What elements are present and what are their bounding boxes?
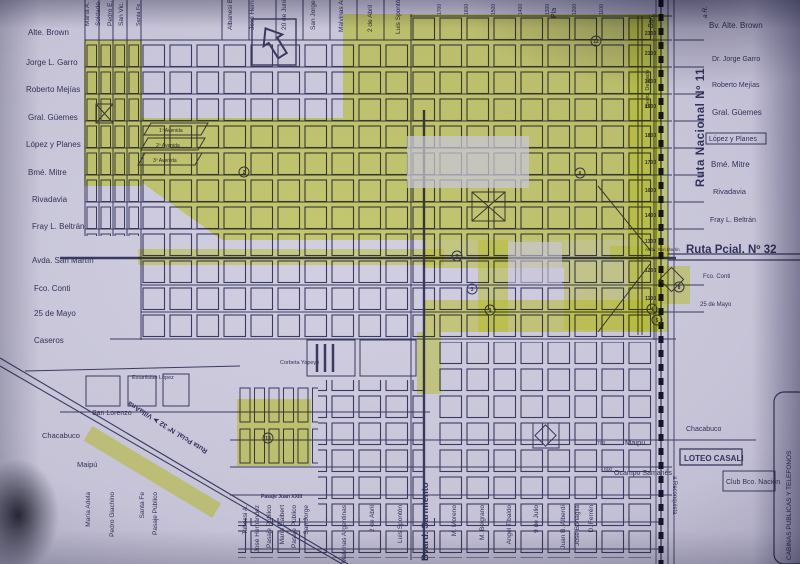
street-label: Avda. San Martín: [32, 256, 94, 265]
km-mark: 1500: [491, 4, 497, 15]
street-label: Soldado: [95, 2, 102, 26]
street-label: López y Planes: [709, 136, 757, 143]
street-label: Fray L. Beltrán: [710, 217, 756, 224]
street-label: José Bonaglia: [574, 505, 581, 546]
street-label: 20 de Junio: [281, 0, 288, 30]
street-label: Tabossi A.: [242, 505, 249, 535]
ruta-11-label: Ruta Nacional Nº 11: [695, 68, 707, 187]
street-label: José Hernández: [254, 505, 261, 552]
street-label: Pasaje Público: [291, 505, 298, 548]
street-label: Bmé. Mitre: [28, 168, 67, 177]
boulevard-label: Bvard. Sarmiento: [420, 482, 431, 561]
km-mark: 1100: [599, 4, 605, 15]
street-label: Angel Tibaldo: [506, 505, 513, 545]
km-mark: 1600: [464, 4, 470, 15]
street-label: D. Ferrén: [588, 505, 595, 533]
street-label: Caseros: [34, 336, 64, 345]
street-label: San Lorenzo: [92, 410, 132, 417]
street-label: Gral. Güemes: [28, 113, 78, 122]
street-label: Albanesi B.: [227, 0, 234, 30]
street-label: Dr. Jorge Garro: [712, 56, 760, 63]
street-label: Fray L. Beltrán: [32, 222, 84, 231]
street-label: 25 de Mayo: [700, 302, 732, 308]
street-label: Chacabuco: [42, 431, 80, 440]
street-label: María A.: [84, 2, 91, 26]
km-mark: 1300: [545, 4, 551, 15]
street-label: Jorge L. Garro: [26, 58, 78, 67]
street-label: San Vic.: [118, 2, 125, 26]
loteo-casali-label: LOTEO CASALI: [684, 454, 744, 463]
street-label: Pasaje Público: [152, 492, 159, 535]
street-label: San Jorge: [310, 0, 317, 30]
street-label: Bmé. Mitre: [711, 160, 750, 169]
street-label: a R.: [702, 6, 709, 18]
street-label: Mario Galbert: [279, 505, 286, 545]
street-label: Estanislao López: [132, 375, 174, 381]
street-label: Chacabuco: [686, 426, 722, 433]
club-label: Club Bco. Nación: [726, 479, 780, 486]
street-label: Rivadavia: [713, 187, 747, 196]
street-label: Gral. Güemes: [712, 108, 762, 117]
pasaje-juan-xxiii-label: Pasaje Juan XXIII: [261, 494, 303, 500]
marker-number: 3: [471, 287, 474, 293]
street-label: María Adela: [85, 492, 92, 527]
cabins-label: CABINAS PUBLICAS Y TELEFONOS: [786, 450, 793, 560]
street-label: José Hernández: [249, 0, 256, 30]
street-label: Malvinas Argentinas: [341, 504, 348, 563]
street-label: Fco. Conti: [34, 284, 71, 293]
street-label: Roberto Mejías: [712, 82, 760, 89]
street-label: Pedro E.: [107, 1, 114, 26]
street-label: San Jorge: [303, 505, 310, 535]
street-label: 25 de Mayo: [34, 309, 76, 318]
corbeta-yapeyo-label: Corbeta Yapeyó: [280, 360, 319, 366]
margin-boxes: [680, 133, 800, 564]
street-label: M. Belgrano: [479, 505, 486, 540]
map-photo: Alte. Brown Jorge L. Garro Roberto Mejía…: [0, 0, 800, 564]
km-mark: 1400: [518, 4, 524, 15]
route-label: Ruta Pcial. Nº 32: [686, 244, 776, 256]
street-label: 2 de Abril: [369, 504, 376, 532]
street-label: Ocampo Samanés: [614, 470, 672, 477]
km-mark: 700: [597, 441, 606, 447]
street-label: Roberto Mejías: [26, 85, 80, 94]
street-label: Fco. Conti: [703, 274, 730, 280]
street-label: M. Moreno: [451, 505, 458, 536]
street-label: Maipú: [77, 460, 97, 469]
street-label: Santa Fe: [136, 4, 142, 26]
km-mark: 1200: [572, 4, 578, 15]
km-mark: 800: [604, 467, 613, 473]
street-label: Luis Spontón: [397, 505, 404, 543]
street-label: Santa Fe: [139, 492, 146, 519]
city-map-svg: Alte. Brown Jorge L. Garro Roberto Mejía…: [0, 0, 800, 564]
street-label: López y Planes: [26, 140, 81, 149]
street-label: Bv. Alte. Brown: [709, 21, 763, 30]
street-label: Alte. Brown: [28, 28, 69, 37]
street-label: Maipú: [625, 438, 645, 447]
street-label: Juan B. Alberdi: [560, 505, 567, 549]
km-mark: 1700: [437, 4, 443, 15]
street-label: Pedro Giachino: [109, 492, 116, 537]
street-label: Pasaje Público: [266, 505, 273, 548]
a-reconquista-label: a Reconquista: [671, 476, 677, 515]
street-label: Rivadavia: [32, 195, 68, 204]
street-label: 9 de Julio: [533, 505, 540, 533]
